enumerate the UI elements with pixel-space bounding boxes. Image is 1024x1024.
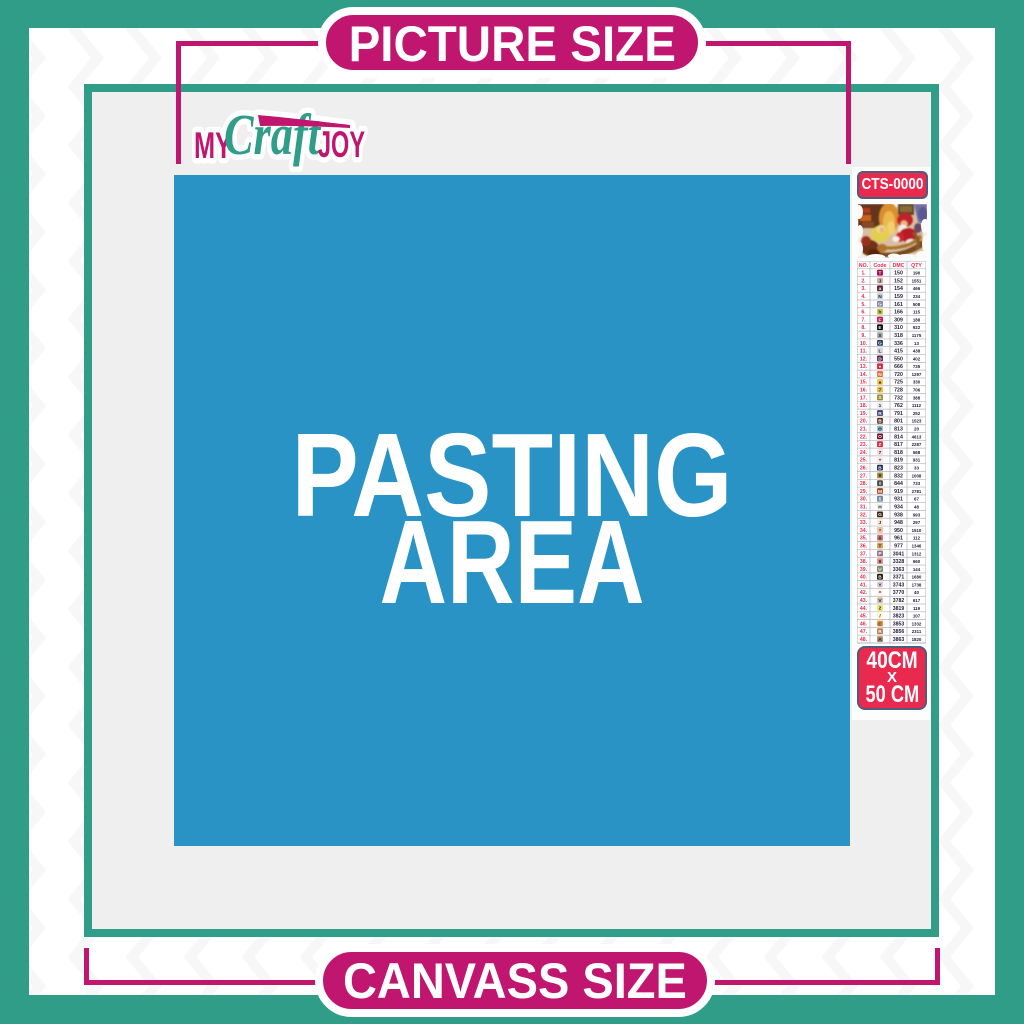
svg-text:922: 922	[913, 325, 921, 330]
svg-text:762: 762	[894, 403, 903, 409]
svg-text:11.: 11.	[860, 349, 867, 355]
svg-text:43.: 43.	[860, 598, 868, 604]
svg-text:24.: 24.	[860, 450, 868, 456]
svg-text:DMC: DMC	[893, 263, 905, 269]
svg-text:144: 144	[913, 567, 921, 572]
svg-text:1551: 1551	[912, 278, 922, 283]
svg-text:152: 152	[894, 278, 903, 284]
svg-text:a: a	[879, 287, 882, 292]
svg-text:J: J	[879, 520, 882, 526]
svg-text:119: 119	[913, 606, 921, 611]
svg-text:234: 234	[913, 294, 921, 299]
svg-text:26.: 26.	[860, 465, 868, 471]
svg-text:48.: 48.	[860, 637, 868, 643]
svg-text:732: 732	[894, 395, 903, 401]
svg-text:706: 706	[913, 388, 921, 393]
svg-text:1312: 1312	[912, 551, 922, 556]
svg-text:27.: 27.	[860, 473, 868, 479]
svg-text:Craft: Craft	[224, 102, 321, 167]
svg-text:13.: 13.	[860, 364, 868, 370]
svg-text:931: 931	[913, 458, 921, 463]
svg-text:161: 161	[894, 302, 903, 308]
svg-text:550: 550	[894, 356, 903, 362]
svg-text:39.: 39.	[860, 567, 868, 573]
svg-text:438: 438	[913, 349, 921, 354]
svg-text:42.: 42.	[860, 590, 868, 596]
svg-text:29.: 29.	[860, 489, 868, 495]
svg-text:37.: 37.	[860, 551, 868, 557]
svg-text:16.: 16.	[860, 388, 868, 394]
svg-text:14.: 14.	[860, 372, 868, 378]
svg-text:25.: 25.	[860, 458, 868, 464]
svg-text:G: G	[878, 341, 882, 347]
svg-text:F: F	[879, 317, 882, 323]
svg-text:817: 817	[894, 442, 903, 448]
svg-text:40.: 40.	[860, 575, 868, 581]
svg-text:1820: 1820	[912, 637, 922, 642]
svg-text:M: M	[878, 489, 882, 495]
svg-text:+: +	[879, 459, 882, 464]
svg-text:▲: ▲	[878, 381, 883, 386]
svg-text:AREA: AREA	[380, 496, 645, 629]
svg-text:6.: 6.	[861, 310, 866, 316]
svg-text:252: 252	[913, 411, 921, 416]
svg-text:QTY: QTY	[911, 263, 922, 269]
svg-text:3328: 3328	[893, 559, 905, 565]
svg-text:41.: 41.	[860, 582, 868, 588]
svg-text:47.: 47.	[860, 629, 868, 635]
svg-text:2: 2	[879, 606, 882, 612]
svg-text:159: 159	[894, 294, 903, 300]
svg-text:45.: 45.	[860, 614, 868, 620]
svg-text:1332: 1332	[912, 621, 922, 626]
svg-text:34.: 34.	[860, 528, 868, 534]
svg-text:7: 7	[879, 450, 882, 456]
svg-text:791: 791	[894, 411, 903, 417]
svg-text:112: 112	[913, 536, 921, 541]
svg-text:1297: 1297	[912, 372, 922, 377]
svg-text:3823: 3823	[893, 614, 905, 620]
svg-text:2.: 2.	[861, 278, 866, 284]
svg-text:813: 813	[894, 427, 903, 433]
svg-text:330: 330	[913, 380, 921, 385]
svg-text:190: 190	[913, 271, 921, 276]
svg-text:309: 309	[894, 317, 903, 323]
svg-text:950: 950	[894, 528, 903, 534]
svg-text:L: L	[879, 348, 882, 354]
svg-text:8.: 8.	[861, 325, 866, 331]
svg-text:N: N	[878, 294, 882, 300]
svg-text:3863: 3863	[893, 637, 905, 643]
svg-text:28.: 28.	[860, 481, 868, 487]
svg-text:&: &	[878, 536, 882, 542]
svg-text:1008: 1008	[912, 473, 922, 478]
svg-text:934: 934	[894, 504, 903, 510]
svg-text:2287: 2287	[912, 442, 922, 447]
svg-text:818: 818	[894, 450, 903, 456]
svg-text:1523: 1523	[912, 419, 922, 424]
svg-text:931: 931	[894, 497, 903, 503]
svg-text:44.: 44.	[860, 606, 868, 612]
svg-text:819: 819	[894, 458, 903, 464]
svg-text:844: 844	[894, 481, 903, 487]
svg-text:46.: 46.	[860, 621, 868, 627]
svg-text:735: 735	[913, 364, 921, 369]
svg-text:H: H	[878, 504, 882, 510]
svg-text:1510: 1510	[912, 528, 922, 533]
svg-text:T: T	[879, 543, 882, 549]
svg-text:4.: 4.	[861, 294, 866, 300]
svg-text:5: 5	[879, 497, 882, 503]
svg-text:823: 823	[894, 465, 903, 471]
svg-text:5.: 5.	[861, 302, 866, 308]
svg-text:1112: 1112	[912, 403, 922, 408]
svg-text:948: 948	[894, 520, 903, 526]
svg-text:B: B	[878, 465, 882, 471]
svg-text:21.: 21.	[860, 427, 868, 433]
svg-text:35.: 35.	[860, 536, 868, 542]
svg-text:33.: 33.	[860, 520, 868, 526]
svg-text:388: 388	[913, 395, 921, 400]
svg-text:19.: 19.	[860, 411, 868, 417]
svg-text:13: 13	[914, 341, 919, 346]
svg-text:17.: 17.	[860, 395, 868, 401]
svg-text:N: N	[878, 372, 882, 378]
svg-text:508: 508	[913, 302, 921, 307]
svg-text:38.: 38.	[860, 559, 868, 565]
svg-text:1: 1	[879, 403, 882, 409]
svg-text:993: 993	[913, 512, 921, 517]
svg-text:12.: 12.	[860, 356, 868, 362]
svg-text:*: *	[879, 528, 881, 534]
svg-text:150: 150	[894, 271, 903, 277]
svg-text:415: 415	[894, 349, 903, 355]
svg-text:9: 9	[879, 559, 882, 565]
svg-text:3770: 3770	[893, 590, 905, 596]
svg-text:3.: 3.	[861, 286, 866, 292]
svg-text:22.: 22.	[860, 434, 868, 440]
svg-text:919: 919	[894, 489, 903, 495]
svg-text:336: 336	[894, 341, 903, 347]
svg-text:7: 7	[879, 387, 882, 393]
svg-text:568: 568	[913, 450, 921, 455]
svg-text:977: 977	[894, 543, 903, 549]
svg-text:938: 938	[894, 512, 903, 518]
svg-text:67: 67	[914, 497, 919, 502]
svg-text:20: 20	[914, 427, 919, 432]
svg-text:NO.: NO.	[859, 263, 869, 269]
svg-text:107: 107	[913, 614, 921, 619]
svg-text:R: R	[878, 411, 882, 417]
svg-text:R: R	[878, 629, 882, 635]
svg-text:32.: 32.	[860, 512, 868, 518]
svg-text:3853: 3853	[893, 621, 905, 627]
svg-text:188: 188	[913, 317, 921, 322]
svg-text:801: 801	[894, 419, 903, 425]
svg-text:A: A	[878, 637, 882, 643]
svg-text:9.: 9.	[861, 333, 866, 339]
svg-text:Θ: Θ	[878, 426, 882, 432]
svg-text:961: 961	[894, 536, 903, 542]
svg-text:3856: 3856	[893, 629, 905, 635]
svg-text:2311: 2311	[912, 629, 922, 634]
svg-text:3363: 3363	[893, 567, 905, 573]
svg-text:7.: 7.	[861, 317, 866, 323]
svg-text:18.: 18.	[860, 403, 868, 409]
svg-text:Code: Code	[874, 263, 887, 269]
svg-text:617: 617	[913, 598, 921, 603]
svg-text:O: O	[878, 434, 882, 440]
svg-text:U: U	[878, 567, 882, 573]
svg-text:1346: 1346	[912, 543, 922, 548]
svg-text:J: J	[879, 278, 882, 284]
svg-text:733: 733	[913, 481, 921, 486]
svg-text:725: 725	[894, 380, 903, 386]
svg-text:115: 115	[913, 310, 921, 315]
svg-text:23.: 23.	[860, 442, 868, 448]
svg-text:154: 154	[894, 286, 903, 292]
svg-text:B: B	[878, 575, 882, 581]
svg-text:31.: 31.	[860, 504, 868, 510]
svg-text:3371: 3371	[893, 575, 905, 581]
svg-text:666: 666	[894, 364, 903, 370]
svg-text:3743: 3743	[893, 582, 905, 588]
svg-text:JOY: JOY	[318, 124, 365, 165]
svg-text:297: 297	[913, 520, 921, 525]
svg-text:3782: 3782	[893, 598, 905, 604]
svg-text:20.: 20.	[860, 419, 868, 425]
svg-text:48: 48	[914, 504, 919, 509]
svg-text:832: 832	[894, 473, 903, 479]
svg-text:Z: Z	[879, 442, 882, 448]
svg-text:720: 720	[894, 372, 903, 378]
svg-text:15.: 15.	[860, 380, 868, 386]
svg-text:33: 33	[914, 465, 919, 470]
svg-text:3041: 3041	[893, 551, 905, 557]
svg-text:B: B	[878, 419, 882, 425]
svg-text:166: 166	[894, 310, 903, 316]
svg-text:8: 8	[879, 473, 882, 479]
svg-text:1738: 1738	[912, 582, 922, 587]
svg-text:40: 40	[914, 590, 919, 595]
svg-text:4613: 4613	[912, 434, 922, 439]
svg-text:318: 318	[894, 333, 903, 339]
svg-text:466: 466	[913, 286, 921, 291]
svg-text:●: ●	[879, 365, 882, 370]
svg-text:D: D	[878, 356, 882, 362]
svg-text:G: G	[878, 302, 882, 308]
svg-text:30.: 30.	[860, 497, 868, 503]
svg-text:310: 310	[894, 325, 903, 331]
svg-text:814: 814	[894, 434, 903, 440]
svg-text:G: G	[878, 512, 882, 518]
svg-text:2781: 2781	[912, 489, 922, 494]
svg-text:1680: 1680	[912, 575, 922, 580]
svg-text:T: T	[879, 270, 882, 276]
svg-text:C: C	[878, 621, 882, 627]
svg-text:^: ^	[879, 590, 882, 596]
svg-text:1.: 1.	[861, 271, 866, 277]
svg-text:10.: 10.	[860, 341, 868, 347]
svg-text:h: h	[879, 309, 882, 315]
svg-text:1175: 1175	[912, 333, 922, 338]
svg-text:3819: 3819	[893, 606, 905, 612]
svg-text:402: 402	[913, 356, 921, 361]
svg-text:660: 660	[913, 559, 921, 564]
svg-text:36.: 36.	[860, 543, 868, 549]
svg-text:728: 728	[894, 388, 903, 394]
